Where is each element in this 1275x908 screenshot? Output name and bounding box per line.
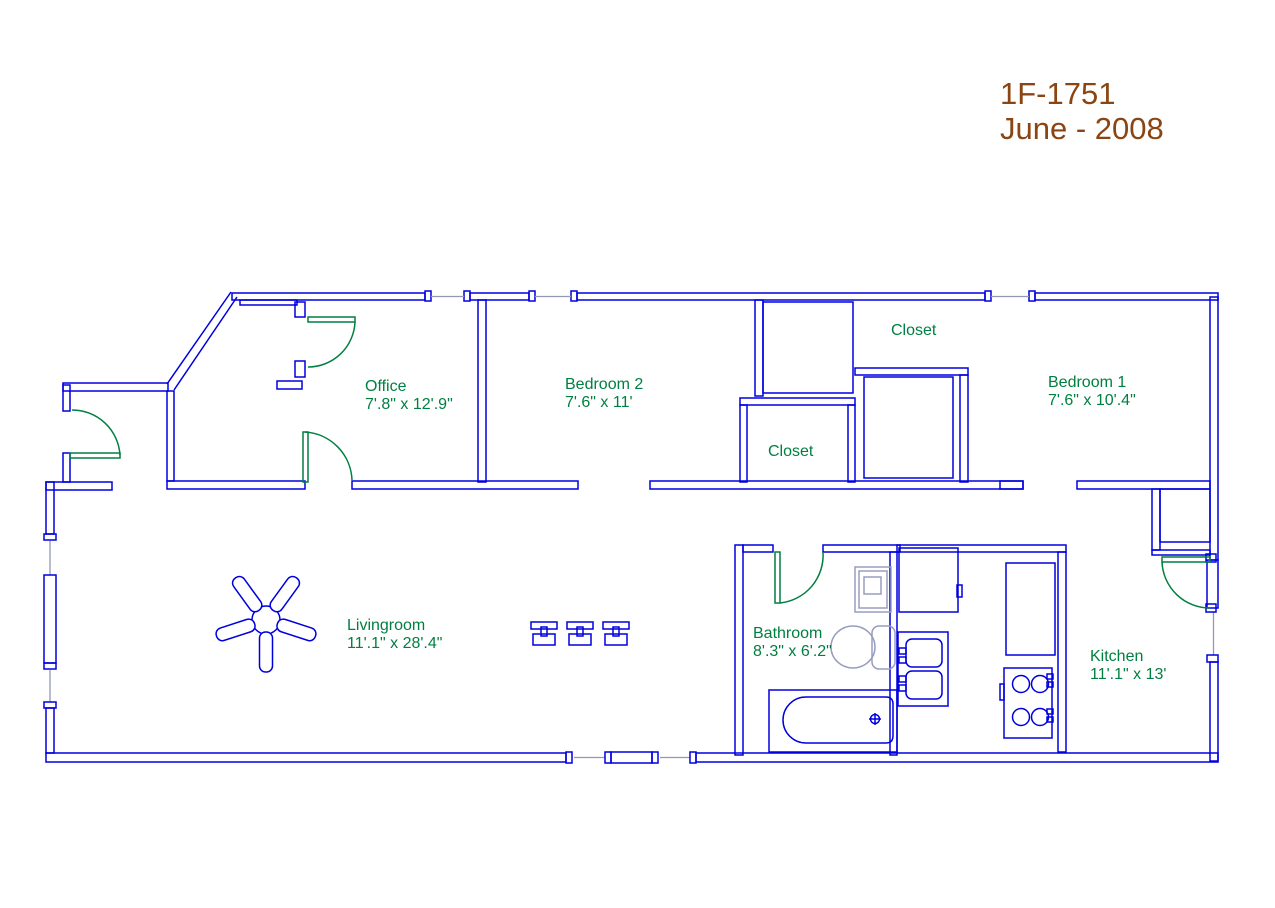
utility-cabinet-icon xyxy=(899,548,962,612)
title-block: 1F-1751 June - 2008 xyxy=(1000,76,1164,146)
bathtub-icon xyxy=(769,690,897,752)
floor-box-icons xyxy=(531,622,629,645)
diagonal-wall xyxy=(167,292,237,390)
kitchen-counter-icon xyxy=(1006,563,1055,655)
laundry-sink-icon xyxy=(898,632,948,706)
closet-middle-label: Closet xyxy=(768,443,814,460)
window-left-2 xyxy=(44,663,56,708)
plan-id: 1F-1751 xyxy=(1000,76,1115,111)
window-top-2 xyxy=(529,291,577,301)
window-left-1 xyxy=(44,534,56,663)
interior-walls xyxy=(167,300,1216,755)
bedroom1-label: Bedroom 1 xyxy=(1048,374,1126,391)
bathroom-dims: 8'.3" x 6'.2" xyxy=(753,643,832,660)
bedroom2-label: Bedroom 2 xyxy=(565,376,643,393)
livingroom-label: Livingroom xyxy=(347,617,425,634)
floor-box-icon xyxy=(531,622,557,645)
floor-box-icon xyxy=(567,622,593,645)
toilet-icon xyxy=(831,626,895,669)
stove-icon xyxy=(1000,668,1053,738)
window-top-1 xyxy=(425,291,470,301)
bathroom-door xyxy=(775,552,823,603)
office-bottom-door xyxy=(303,432,352,482)
office-top-door xyxy=(308,317,355,367)
floor-plan-svg: 1F-1751 June - 2008 Office 7'.8" x 12'.9… xyxy=(0,0,1275,908)
bedroom1-dims: 7'.6" x 10'.4" xyxy=(1048,392,1136,409)
floor-plan-page: 1F-1751 June - 2008 Office 7'.8" x 12'.9… xyxy=(0,0,1275,908)
entry-door xyxy=(70,410,120,458)
closet-top-label: Closet xyxy=(891,322,937,339)
kitchen-dims: 11'.1" x 13' xyxy=(1090,666,1166,683)
bedroom2-dims: 7'.6" x 11' xyxy=(565,394,633,411)
window-bottom-1 xyxy=(566,752,611,763)
doors xyxy=(70,317,1210,608)
office-dims: 7'.8" x 12'.9" xyxy=(365,396,453,413)
kitchen-label: Kitchen xyxy=(1090,648,1143,665)
ceiling-fan-icon xyxy=(215,574,318,672)
floor-box-icon xyxy=(603,622,629,645)
pedestal-sink-icon xyxy=(855,567,891,612)
window-top-3 xyxy=(985,291,1035,301)
bathroom-label: Bathroom xyxy=(753,625,822,642)
office-label: Office xyxy=(365,378,407,395)
room-labels: Office 7'.8" x 12'.9" Bedroom 2 7'.6" x … xyxy=(347,322,1166,683)
kitchen-door xyxy=(1162,557,1210,608)
livingroom-dims: 11'.1" x 28'.4" xyxy=(347,635,442,652)
window-bottom-2 xyxy=(652,752,696,763)
plan-date: June - 2008 xyxy=(1000,111,1164,146)
